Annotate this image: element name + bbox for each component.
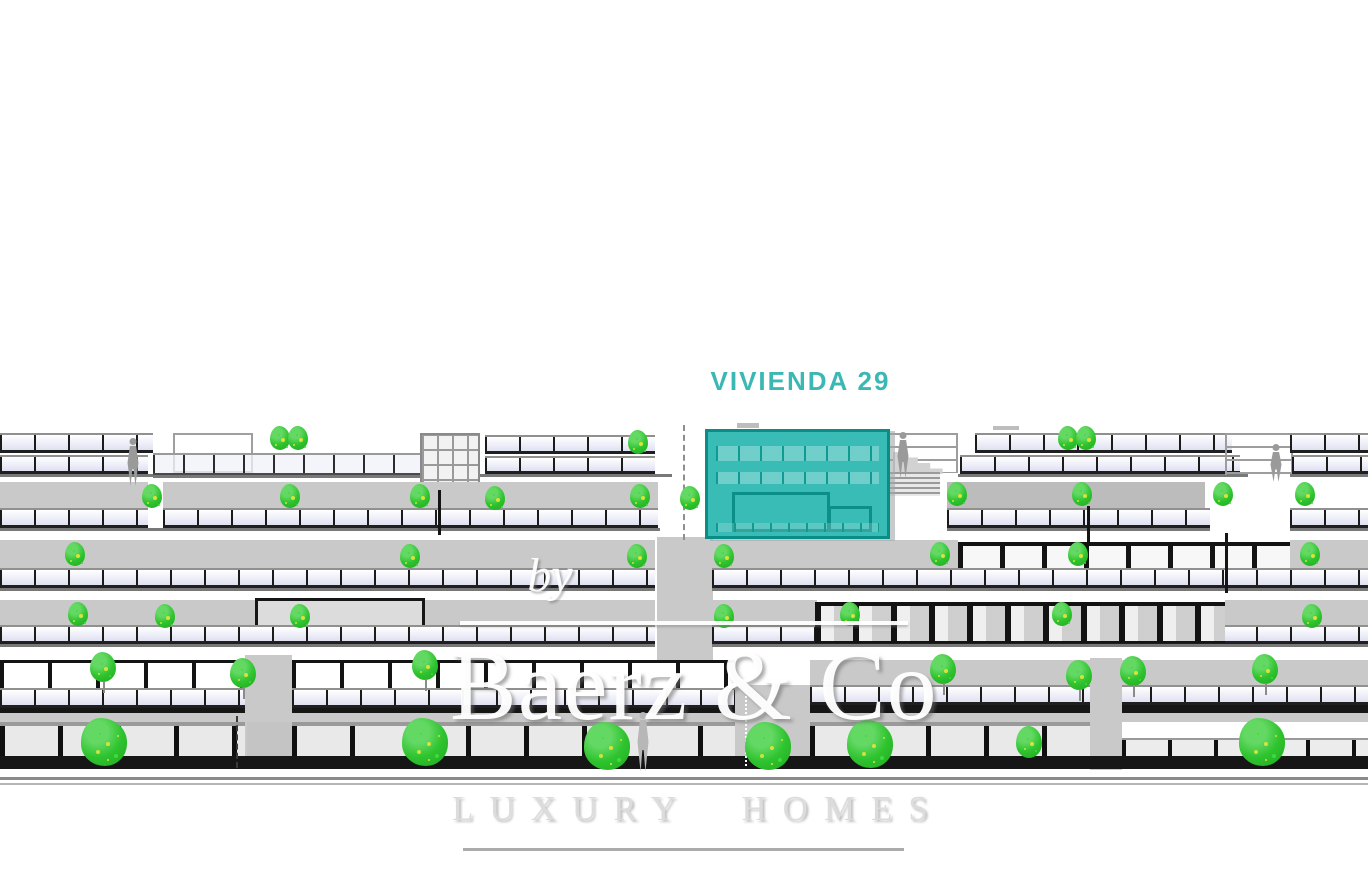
- tree-icon: [1120, 656, 1146, 686]
- tree-icon: [1058, 426, 1078, 450]
- base-slab: [0, 756, 1368, 769]
- tree-icon: [410, 484, 430, 508]
- person-figure: [1270, 444, 1282, 482]
- glazing-strip: [810, 685, 1368, 705]
- floor-slab: [1290, 474, 1368, 477]
- window-frames: [0, 660, 245, 688]
- listing-image: VIVIENDA 29 by Baerz & Co LUXURY HOMES: [0, 0, 1368, 889]
- highlighted-unit-vivienda-29: [705, 429, 890, 539]
- floor-slab: [958, 474, 1248, 477]
- roof-vent: [993, 426, 1019, 430]
- unit-window-row: [716, 472, 879, 484]
- person-figure: [637, 712, 649, 772]
- tree-icon: [1302, 604, 1322, 628]
- wall-band: [712, 540, 958, 568]
- floor-slab: [0, 528, 660, 531]
- tree-icon: [745, 722, 791, 770]
- tree-icon: [400, 544, 420, 568]
- tree-icon: [1016, 726, 1042, 758]
- glazing-strip: [0, 688, 245, 708]
- unit-window-row: [716, 446, 879, 461]
- glazing-strip: [0, 568, 655, 588]
- floor-slab: [480, 474, 672, 477]
- wall-band: [0, 540, 655, 568]
- tree-icon: [288, 426, 308, 450]
- tree-icon: [1213, 482, 1233, 506]
- tree-icon: [81, 718, 127, 766]
- glazing-strip: [947, 508, 1210, 528]
- glazing-strip: [0, 455, 148, 474]
- glazing-strip: [712, 568, 1368, 588]
- tree-icon: [630, 484, 650, 508]
- tree-icon: [1052, 602, 1072, 626]
- tree-icon: [1239, 718, 1285, 766]
- roof-vent: [737, 423, 759, 428]
- tree-icon: [930, 542, 950, 566]
- tree-icon: [155, 604, 175, 628]
- tree-icon: [1300, 542, 1320, 566]
- tree-icon: [714, 544, 734, 568]
- person-figure: [897, 432, 909, 478]
- watermark-divider-bottom: [463, 848, 904, 851]
- tree-icon: [847, 720, 893, 768]
- tree-icon: [584, 722, 630, 770]
- window-frames: [292, 660, 735, 688]
- floor-slab: [712, 644, 1368, 647]
- building-elevation-drawing: [0, 420, 1368, 790]
- tree-icon: [627, 544, 647, 568]
- glazing-strip: [975, 433, 1232, 453]
- tree-icon: [290, 604, 310, 628]
- watermark-tagline: LUXURY HOMES: [452, 789, 914, 829]
- tree-icon: [1252, 654, 1278, 684]
- tree-icon: [1072, 482, 1092, 506]
- unit-label: VIVIENDA 29: [698, 366, 903, 397]
- tree-icon: [270, 426, 290, 450]
- tree-icon: [142, 484, 162, 508]
- tree-icon: [1295, 482, 1315, 506]
- floor-slab: [1290, 528, 1368, 531]
- ground-line: [0, 783, 1368, 785]
- structural-line: [438, 490, 441, 535]
- wall-band: [0, 482, 148, 509]
- tree-icon: [1066, 660, 1092, 690]
- floor-slab: [0, 588, 655, 591]
- glazing-strip: [960, 455, 1240, 474]
- glazing-strip: [1290, 508, 1368, 528]
- wall-band: [0, 713, 1368, 722]
- tree-icon: [930, 654, 956, 684]
- glazing-strip: [485, 456, 655, 474]
- tree-icon: [947, 482, 967, 506]
- glazing-strip: [0, 508, 148, 528]
- structural-line: [1225, 533, 1228, 593]
- tree-icon: [485, 486, 505, 510]
- tree-icon: [412, 650, 438, 680]
- tree-icon: [90, 652, 116, 682]
- glazing-strip: [1292, 455, 1368, 474]
- tree-icon: [65, 542, 85, 566]
- tree-icon: [68, 602, 88, 626]
- section-line: [683, 425, 685, 540]
- wall-band: [1225, 600, 1368, 626]
- tree-icon: [840, 602, 860, 626]
- tree-icon: [280, 484, 300, 508]
- ground-line: [0, 777, 1368, 780]
- tree-icon: [1068, 542, 1088, 566]
- glazing-strip: [1290, 433, 1368, 453]
- floor-slab: [947, 528, 1210, 531]
- unit-sill-row: [716, 523, 879, 532]
- stair-railing: [1225, 433, 1293, 475]
- glazing-strip: [292, 688, 735, 708]
- glazing-strip: [0, 625, 655, 644]
- tree-icon: [680, 486, 700, 510]
- window-frames: [815, 602, 1225, 643]
- glazing-strip: [163, 508, 658, 528]
- tree-icon: [230, 658, 256, 688]
- tree-icon: [1076, 426, 1096, 450]
- tree-icon: [628, 430, 648, 454]
- tree-icon: [402, 718, 448, 766]
- tree-icon: [714, 604, 734, 628]
- section-line: [236, 716, 238, 768]
- railing: [153, 453, 453, 475]
- person-figure: [127, 438, 139, 486]
- floor-slab: [712, 588, 1368, 591]
- floor-slab: [0, 644, 655, 647]
